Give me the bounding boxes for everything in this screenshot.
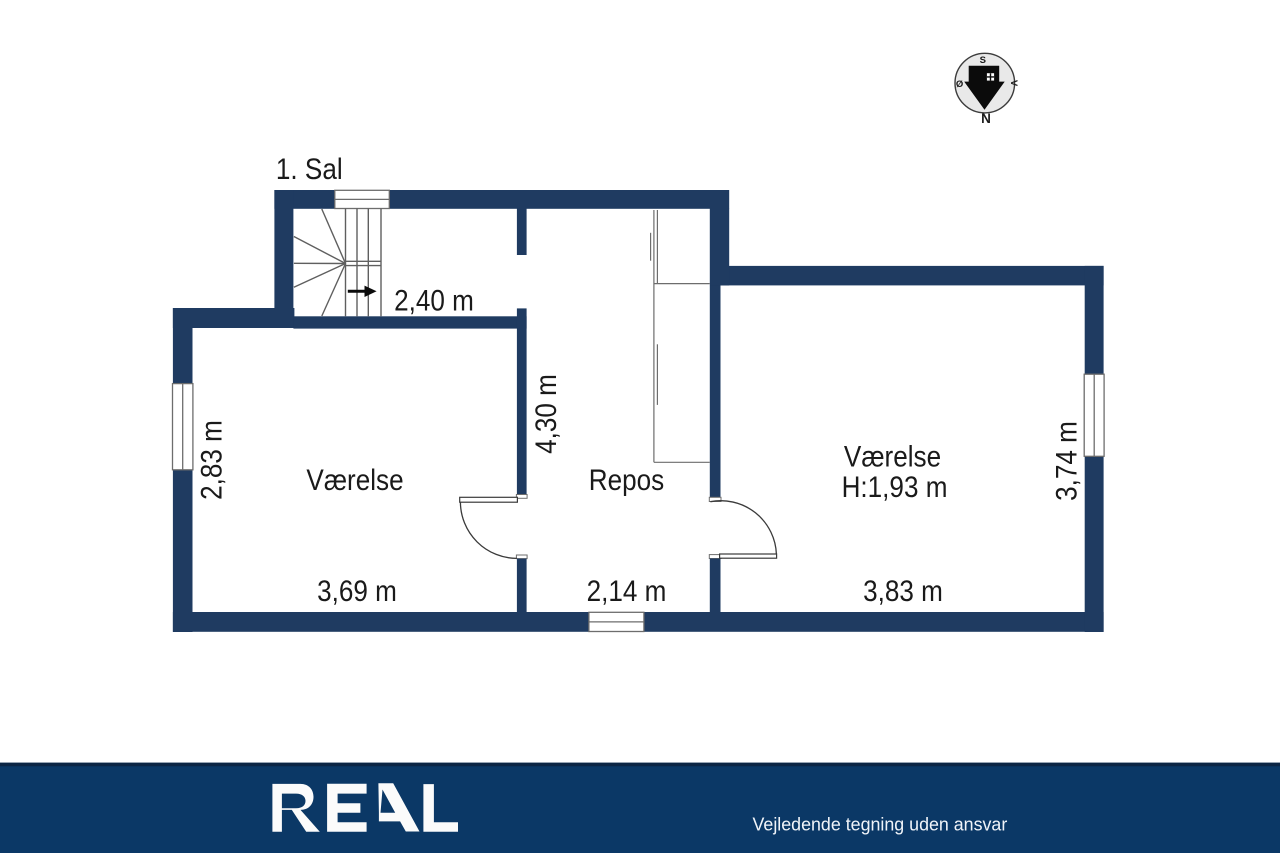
svg-text:Vejledende tegning uden ansvar: Vejledende tegning uden ansvar — [753, 814, 1008, 834]
svg-text:1. Sal: 1. Sal — [276, 152, 343, 185]
svg-text:3,83 m: 3,83 m — [863, 575, 943, 608]
svg-text:3,69 m: 3,69 m — [317, 575, 397, 608]
svg-text:Værelse: Værelse — [844, 440, 941, 473]
svg-text:2,14 m: 2,14 m — [587, 575, 667, 608]
svg-text:2,83 m: 2,83 m — [195, 420, 228, 500]
svg-text:V: V — [1008, 80, 1019, 87]
svg-text:4,30 m: 4,30 m — [529, 374, 562, 454]
svg-text:2,40 m: 2,40 m — [394, 284, 474, 317]
svg-text:3,74 m: 3,74 m — [1050, 421, 1083, 501]
svg-text:Værelse: Værelse — [306, 463, 403, 496]
svg-text:H:1,93 m: H:1,93 m — [842, 470, 948, 503]
svg-text:N: N — [981, 111, 991, 126]
svg-text:Ø: Ø — [956, 79, 963, 90]
svg-text:S: S — [980, 55, 986, 66]
svg-text:Repos: Repos — [589, 463, 664, 496]
